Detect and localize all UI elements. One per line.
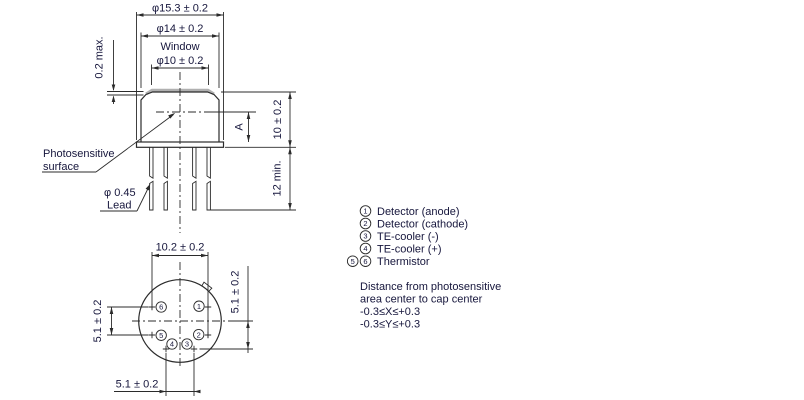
dim-pin-span-label: 10.2 ± 0.2	[156, 242, 205, 254]
pin-number: 5	[159, 331, 163, 340]
arrow-icon	[112, 96, 116, 103]
legend-item-label: Detector (cathode)	[377, 219, 468, 231]
legend-pin-number: 4	[363, 244, 367, 253]
note-line: -0.3≤X≤+0.3	[360, 306, 420, 318]
arrow-icon	[110, 328, 114, 335]
arrow-icon	[137, 13, 144, 17]
bottom-view: 10.2 ± 0.2 6 1 5 2 4 3	[92, 242, 253, 397]
note-line: area center to cap center	[360, 294, 483, 306]
pin-mark	[149, 332, 155, 338]
lead-lower	[164, 181, 167, 210]
lead-lower	[150, 181, 153, 210]
lead-diameter-label: φ 0.45	[104, 187, 136, 199]
lead-lower	[207, 181, 210, 210]
pin-mark	[149, 304, 155, 310]
arrow-icon	[152, 254, 159, 258]
lead-upper	[193, 147, 196, 178]
pin-number: 1	[197, 302, 201, 311]
legend-item-label: Detector (anode)	[377, 206, 460, 218]
arrow-icon	[160, 390, 167, 393]
pin-mark	[205, 304, 211, 310]
legend-pin-number: 6	[363, 257, 367, 266]
arrow-icon	[212, 34, 219, 38]
arrow-icon	[201, 254, 208, 258]
arrow-icon	[288, 92, 292, 99]
arrow-icon	[246, 321, 250, 328]
window-label: Window	[160, 41, 199, 53]
leader-line	[96, 115, 174, 173]
leader-line	[137, 187, 149, 212]
dim-window-diameter-label: φ10 ± 0.2	[157, 55, 204, 67]
arrow-icon	[247, 135, 251, 142]
arrow-icon	[217, 13, 224, 17]
pin-number: 6	[159, 303, 163, 312]
tolerance-note: Distance from photosensitive area center…	[360, 281, 501, 331]
lead-label: Lead	[107, 200, 131, 212]
arrow-icon	[112, 85, 116, 92]
pin-number: 4	[170, 340, 174, 349]
dim-cap-diameter-label: φ14 ± 0.2	[157, 23, 204, 35]
arrow-icon	[288, 203, 292, 210]
dim-row-pitch-right-label: 5.1 ± 0.2	[230, 271, 242, 314]
package-outline-drawing: φ15.3 ± 0.2 φ14 ± 0.2 Window φ10 ± 0.2 0…	[0, 0, 804, 400]
lead-lower	[193, 181, 196, 210]
legend-pin-number: 3	[363, 232, 367, 241]
pin-number: 2	[197, 330, 201, 339]
arrow-icon	[202, 66, 209, 70]
dim-step-label: 0.2 max.	[94, 36, 106, 78]
legend-pin-number: 2	[363, 219, 367, 228]
arrow-icon	[152, 66, 159, 70]
pin-legend: 1 Detector (anode) 2 Detector (cathode) …	[347, 206, 468, 268]
lead-upper	[207, 147, 210, 178]
note-line: Distance from photosensitive	[360, 281, 501, 293]
note-line: -0.3≤Y≤+0.3	[360, 319, 420, 331]
pin-mark	[163, 346, 169, 352]
dim-outer-diameter-label: φ15.3 ± 0.2	[152, 3, 208, 15]
arrow-icon	[288, 140, 292, 147]
arrow-icon	[247, 112, 251, 119]
arrow-icon	[194, 390, 201, 393]
arrow-icon	[141, 34, 148, 38]
legend-item-label: Thermistor	[377, 256, 430, 268]
arrow-icon	[288, 147, 292, 154]
dim-lead-length-label: 12 min.	[272, 160, 284, 196]
side-view: φ15.3 ± 0.2 φ14 ± 0.2 Window φ10 ± 0.2 0…	[42, 3, 296, 234]
dim-a-label: A	[234, 123, 246, 131]
pin-number-labels: 6 1 5 2 4 3	[156, 301, 204, 349]
pin-mark	[205, 332, 211, 338]
photosensitive-label: surface	[43, 161, 79, 173]
photosensitive-label: Photosensitive	[43, 148, 115, 160]
dim-col-pitch-bottom-label: 5.1 ± 0.2	[116, 379, 159, 391]
dim-row-pitch-left-label: 5.1 ± 0.2	[92, 300, 104, 343]
legend-pin-number: 5	[351, 257, 355, 266]
legend-item-label: TE-cooler (-)	[377, 231, 439, 243]
legend-pin-number: 1	[363, 207, 367, 216]
dim-height-label: 10 ± 0.2	[272, 100, 284, 140]
arrow-icon	[110, 307, 114, 314]
lead-upper	[150, 147, 153, 178]
lead-upper	[164, 147, 167, 178]
technical-drawing-page: φ15.3 ± 0.2 φ14 ± 0.2 Window φ10 ± 0.2 0…	[0, 0, 804, 400]
legend-item-label: TE-cooler (+)	[377, 244, 442, 256]
arrow-icon	[246, 342, 250, 349]
pin-number: 3	[185, 340, 189, 349]
